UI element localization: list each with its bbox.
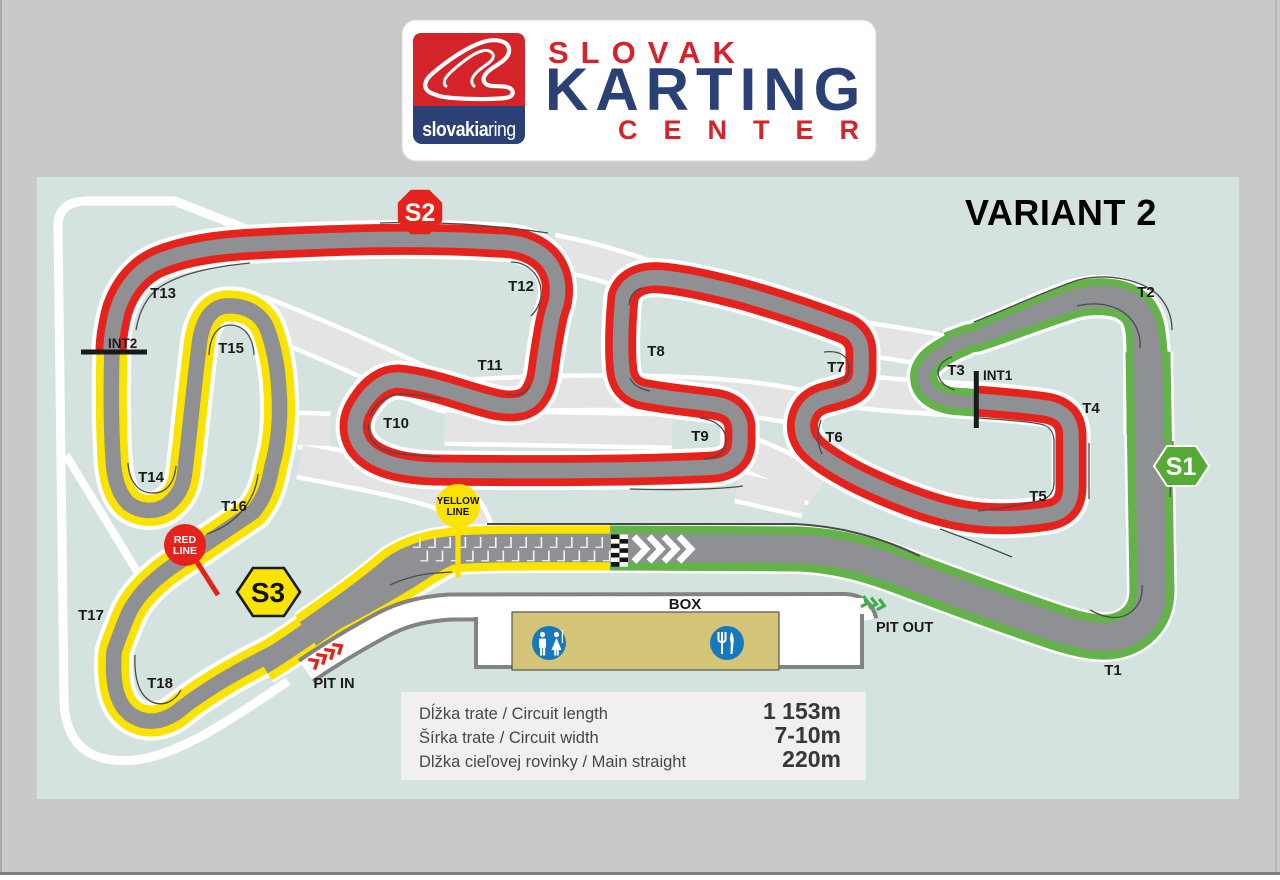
svg-text:T14: T14 bbox=[138, 469, 165, 486]
svg-text:VARIANT 2: VARIANT 2 bbox=[965, 192, 1157, 233]
svg-text:Dĺžka trate / Circuit length: Dĺžka trate / Circuit length bbox=[419, 704, 608, 723]
svg-text:S1: S1 bbox=[1166, 453, 1197, 481]
svg-text:S3: S3 bbox=[251, 577, 285, 608]
svg-text:YELLOW: YELLOW bbox=[437, 496, 480, 507]
svg-text:BOX: BOX bbox=[669, 596, 702, 613]
svg-text:T12: T12 bbox=[508, 278, 534, 295]
svg-text:T4: T4 bbox=[1082, 400, 1100, 417]
svg-text:S2: S2 bbox=[405, 199, 436, 227]
svg-text:T7: T7 bbox=[827, 359, 845, 376]
svg-text:PIT OUT: PIT OUT bbox=[876, 620, 933, 636]
svg-text:T10: T10 bbox=[383, 415, 409, 432]
svg-text:Dlžka cieľovej rovinky / Main: Dlžka cieľovej rovinky / Main straight bbox=[419, 753, 686, 771]
svg-text:Šírka trate / Circuit width: Šírka trate / Circuit width bbox=[419, 728, 599, 747]
svg-text:INT2: INT2 bbox=[108, 336, 137, 351]
svg-text:7-10m: 7-10m bbox=[775, 722, 841, 748]
svg-text:KARTING: KARTING bbox=[545, 56, 867, 123]
svg-text:1 153m: 1 153m bbox=[763, 698, 841, 724]
svg-text:T11: T11 bbox=[477, 357, 502, 374]
svg-text:T2: T2 bbox=[1137, 284, 1155, 301]
svg-text:T16: T16 bbox=[221, 498, 247, 515]
svg-text:T9: T9 bbox=[691, 428, 709, 445]
svg-text:CENTER: CENTER bbox=[618, 115, 885, 145]
svg-text:LINE: LINE bbox=[447, 507, 470, 518]
svg-text:T1: T1 bbox=[1104, 662, 1122, 679]
svg-text:T3: T3 bbox=[947, 362, 965, 379]
svg-text:LINE: LINE bbox=[173, 545, 197, 557]
svg-text:T6: T6 bbox=[825, 429, 843, 446]
svg-text:PIT IN: PIT IN bbox=[313, 676, 354, 692]
svg-text:T13: T13 bbox=[150, 285, 176, 302]
svg-text:slovakiaring: slovakiaring bbox=[422, 118, 515, 140]
svg-text:220m: 220m bbox=[782, 746, 841, 772]
svg-text:T5: T5 bbox=[1029, 488, 1047, 505]
svg-text:T18: T18 bbox=[147, 675, 173, 692]
svg-text:T8: T8 bbox=[647, 343, 665, 360]
svg-text:T17: T17 bbox=[78, 607, 104, 624]
svg-text:INT1: INT1 bbox=[983, 368, 1013, 383]
svg-text:T15: T15 bbox=[218, 340, 244, 357]
